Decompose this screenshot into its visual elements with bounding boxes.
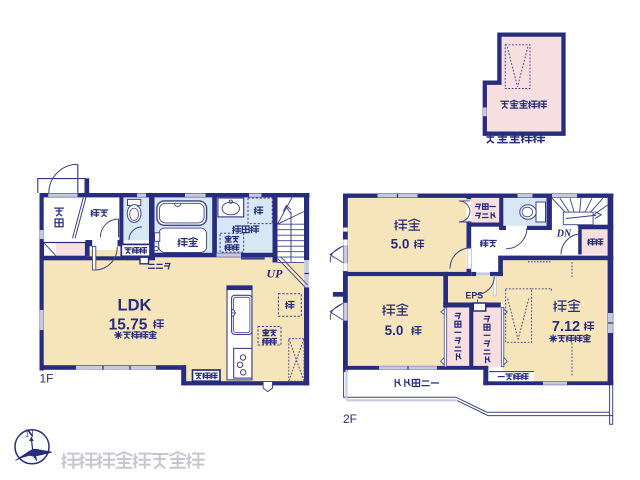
svg-text:LDK: LDK [118, 297, 152, 315]
svg-text:15.75: 15.75 [109, 316, 148, 333]
svg-text:EPS: EPS [465, 290, 483, 300]
svg-text:UP: UP [267, 267, 284, 281]
svg-text:1F: 1F [39, 372, 53, 386]
svg-text:N: N [26, 428, 35, 440]
svg-text:5.0: 5.0 [385, 323, 404, 338]
svg-text:7.12: 7.12 [552, 319, 580, 335]
svg-text:5.0: 5.0 [391, 237, 410, 252]
svg-text:2F: 2F [343, 412, 357, 426]
